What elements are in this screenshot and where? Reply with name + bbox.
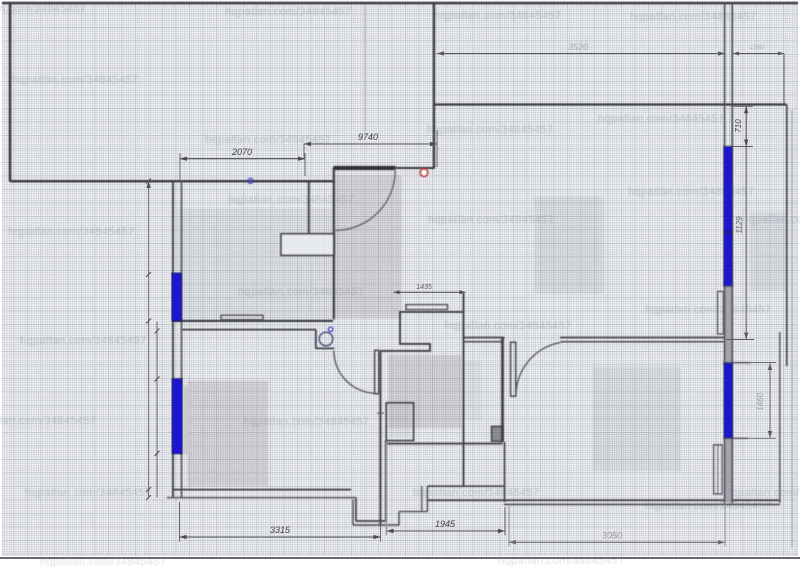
- svg-text:hqpatlan.com/34845457: hqpatlan.com/34845457: [40, 556, 166, 568]
- svg-text:hqpatlan.com/34845457: hqpatlan.com/34845457: [630, 11, 756, 23]
- svg-text:hqpatlan.com/34845457: hqpatlan.com/34845457: [413, 487, 539, 499]
- svg-text:hqpatlan.com/34845457: hqpatlan.com/34845457: [20, 335, 146, 347]
- svg-text:hqpatlan.com/34845457: hqpatlan.com/34845457: [228, 194, 354, 206]
- svg-text:3050: 3050: [602, 531, 622, 541]
- svg-text:1460: 1460: [756, 393, 765, 411]
- svg-text:hqpatlan.com/34845457: hqpatlan.com/34845457: [498, 555, 624, 567]
- svg-text:hqpatlan.com/34845457: hqpatlan.com/34845457: [645, 304, 771, 316]
- svg-text:2070: 2070: [231, 147, 252, 157]
- svg-text:hqpatlan.com/34845457: hqpatlan.com/34845457: [435, 10, 561, 22]
- svg-text:hqpatlan.com/34845457: hqpatlan.com/34845457: [0, 415, 96, 427]
- svg-text:3520: 3520: [568, 42, 588, 52]
- svg-text:hqpatlan.com/34845457: hqpatlan.com/34845457: [645, 500, 771, 512]
- svg-text:1945: 1945: [435, 519, 456, 529]
- svg-text:hqpatlan.com/34845457: hqpatlan.com/34845457: [238, 286, 364, 298]
- svg-text:hqpatlan.com/34845457: hqpatlan.com/34845457: [428, 214, 554, 226]
- svg-text:hqpatlan.com/34845457: hqpatlan.com/34845457: [725, 487, 800, 499]
- svg-text:1129: 1129: [735, 216, 744, 234]
- svg-text:hqpatlan.com/34845457: hqpatlan.com/34845457: [598, 113, 724, 125]
- svg-text:3315: 3315: [270, 525, 291, 535]
- svg-text:hqpatlan.com/34845457: hqpatlan.com/34845457: [25, 487, 151, 499]
- svg-text:hqpatlan.com/34845457: hqpatlan.com/34845457: [12, 74, 138, 86]
- svg-text:hqpatlan.com/34845457: hqpatlan.com/34845457: [243, 416, 369, 428]
- svg-text:hqpatlan.com/34845457: hqpatlan.com/34845457: [427, 124, 553, 136]
- svg-text:hqpatlan.com/34845457: hqpatlan.com/34845457: [628, 186, 754, 198]
- svg-text:hqpatlan.com/34845457: hqpatlan.com/34845457: [225, 6, 351, 18]
- svg-text:hqpatlan.com/34845457: hqpatlan.com/34845457: [742, 214, 800, 226]
- svg-text:hqpatlan.com/34845457: hqpatlan.com/34845457: [0, 3, 86, 15]
- svg-text:hqpatlan.com/34845457: hqpatlan.com/34845457: [8, 226, 134, 238]
- svg-text:1560: 1560: [750, 44, 765, 51]
- svg-text:710: 710: [734, 119, 743, 133]
- svg-text:9740: 9740: [358, 132, 378, 142]
- svg-text:1435: 1435: [416, 284, 432, 291]
